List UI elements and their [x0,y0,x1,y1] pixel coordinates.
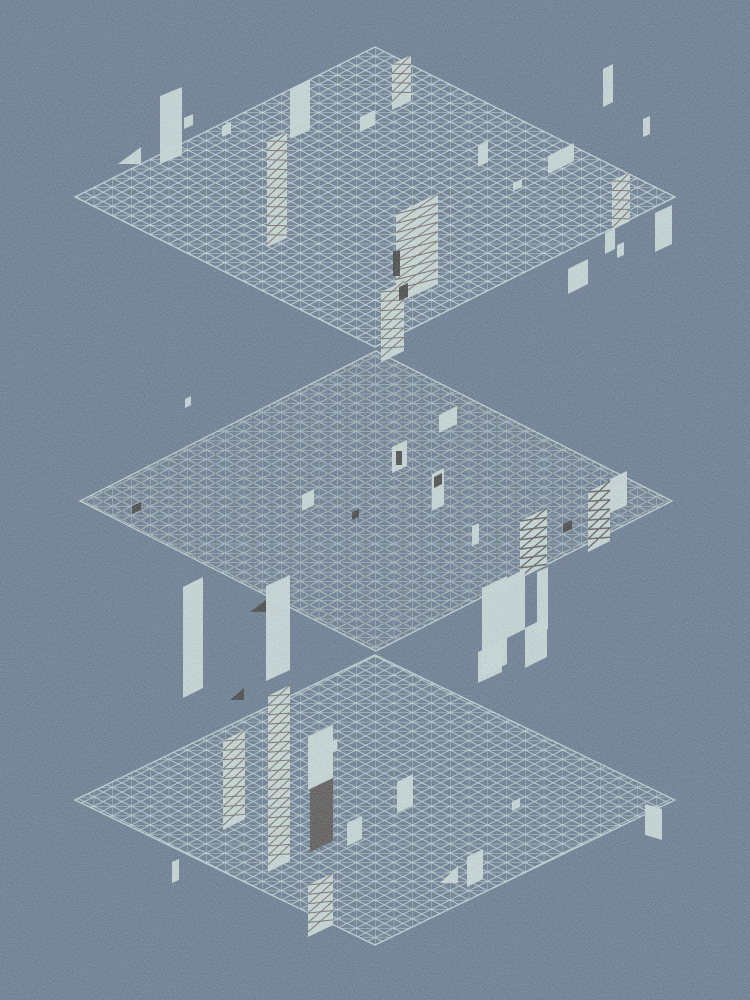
artwork-canvas [0,0,750,1000]
isometric-lattice-artwork [0,0,750,1000]
grain-dark [0,0,750,1000]
